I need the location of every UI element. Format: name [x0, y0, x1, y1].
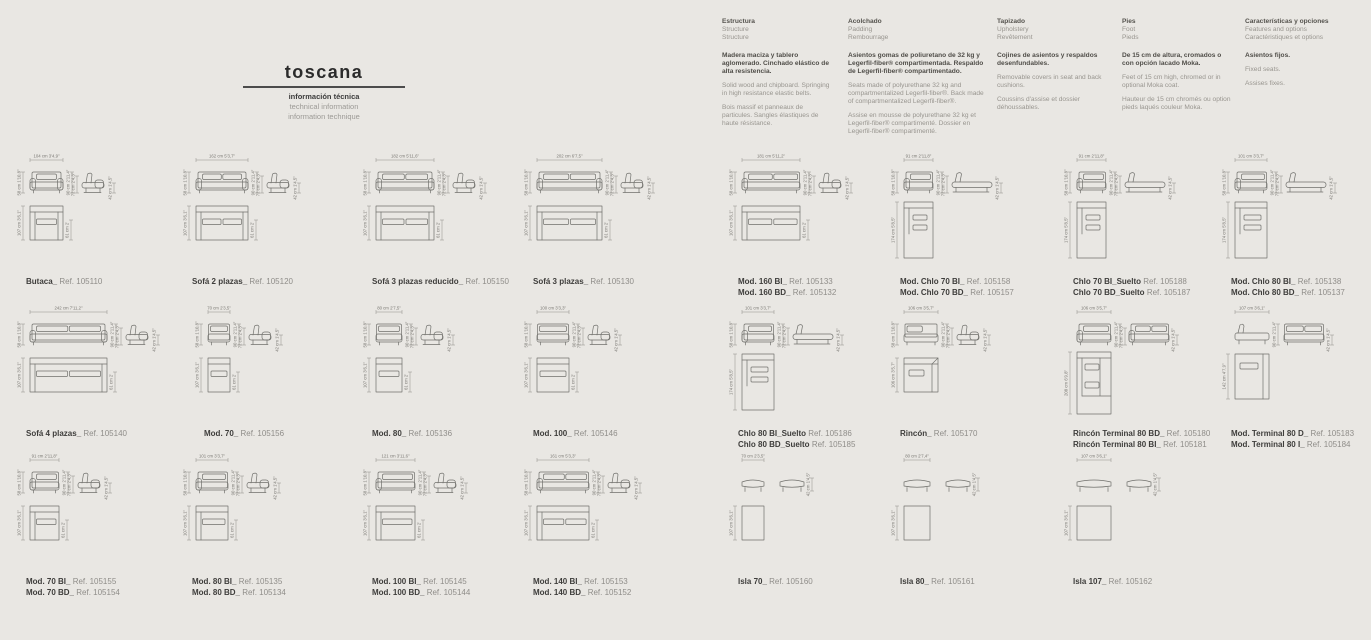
side-view-chaise [793, 325, 833, 344]
technical-drawing: 202 cm 6'7,5"58 cm 1'10,8"90 cm 2'11,4"7… [517, 150, 689, 275]
product-label: Sofá 2 plazas_ Ref. 105120 [192, 277, 348, 288]
plan-view [1077, 202, 1106, 258]
dimension-height: 106 cm 3'5,7" [891, 358, 900, 392]
product-labels: Sofá 3 plazas_ Ref. 105130 [533, 277, 689, 288]
dimension-label: 107 cm 3'6,1" [17, 510, 22, 536]
spec-heading-es: Estructura [722, 18, 834, 26]
technical-drawing: 80 cm 2'7,4"42 cm 1'4,5"107 cm 3'6,1" [884, 450, 1056, 575]
technical-drawing: 101 cm 3'3,7"58 cm 1'10,8"90 cm 2'11,4"7… [176, 450, 348, 575]
dimension-label: 72 cm 2'4,3" [238, 324, 243, 348]
side-view [267, 173, 289, 192]
spec-paragraph: Assise en mousse de polyurethane 32 kg e… [848, 112, 986, 136]
spec-heading: Características y opcionesFeatures and o… [1245, 18, 1365, 42]
product-cell-isla-107: 107 cm 3'6,1"42 cm 1'4,5"107 cm 3'6,1"Is… [1057, 450, 1229, 588]
front-view [376, 324, 402, 345]
dimension-width: 162 cm 5'3,7" [196, 154, 248, 163]
spec-heading-es: Características y opciones [1245, 18, 1365, 26]
product-ref: Ref. 105154 [76, 588, 120, 597]
dimension-label: 174 cm 5'8,5" [729, 369, 734, 395]
dimension-label: 91 cm 2'11,8" [32, 454, 58, 459]
front-view-ottoman [946, 480, 970, 492]
spec-lead: Asientos gomas de poliuretano de 32 kg y… [848, 52, 986, 76]
spec-paragraph: Feet of 15 cm high, chromed or in option… [1122, 74, 1234, 90]
dimension-height: 58 cm 1'10,8" [183, 469, 192, 495]
dimension-label: 42 cm 1'4,5" [972, 472, 977, 496]
product-label: Chlo 70 BD_Suelto Ref. 105187 [1073, 288, 1229, 299]
dimension-label: 72 cm 2'4,3" [610, 172, 615, 196]
dimension-label: 72 cm 2'4,3" [1119, 324, 1124, 348]
side-view [621, 173, 643, 192]
product-ref: Ref. 105135 [239, 577, 283, 586]
plan-view [196, 206, 248, 240]
side-view-chaise [1286, 173, 1326, 192]
product-label: Mod. 140 BI_ Ref. 105153 [533, 577, 689, 588]
dimension-label: 107 cm 3'6,1" [183, 510, 188, 536]
dimension-height: 61 cm 2' [591, 520, 600, 540]
product-name: Rincón_ [900, 429, 932, 438]
product-cell-mod-70: 70 cm 2'3,5"58 cm 1'10,8"90 cm 2'11,4"72… [188, 302, 360, 440]
dimension-label: 100 cm 3'3,3" [540, 306, 566, 311]
dimension-label: 72 cm 2'4,3" [442, 172, 447, 196]
dimension-label: 58 cm 1'10,8" [17, 469, 22, 495]
spec-column-4: PiesFootPiedsDe 15 cm de altura, cromado… [1122, 18, 1234, 118]
dimension-label: 106 cm 3'5,7" [908, 306, 934, 311]
dimension-width: 202 cm 6'7,5" [537, 154, 602, 163]
product-labels: Butaca_ Ref. 105110 [26, 277, 182, 288]
dimension-height: 42 cm 1'4,5" [275, 328, 284, 352]
spec-paragraph: Coussins d'assise et dossier déhoussable… [997, 96, 1115, 112]
product-ref: Ref. 105137 [1301, 288, 1345, 297]
dimension-label: 72 cm 2'4,3" [115, 324, 120, 348]
dimension-height: 58 cm 1'10,8" [183, 169, 192, 195]
dimension-width: 107 cm 3'6,1" [1235, 306, 1269, 315]
dimension-height: 42 cm 1'4,5" [983, 328, 992, 352]
dimension-label: 162 cm 5'3,7" [209, 154, 235, 159]
dimension-height: 42 cm 1'4,5" [806, 472, 815, 496]
dimension-width: 91 cm 2'11,8" [30, 454, 59, 463]
technical-drawing: 161 cm 5'3,3"58 cm 1'10,8"90 cm 2'11,4"7… [517, 450, 689, 575]
product-ref: Ref. 105130 [590, 277, 634, 286]
product-ref: Ref. 105133 [789, 277, 833, 286]
product-labels: Mod. 140 BI_ Ref. 105153Mod. 140 BD_ Ref… [533, 577, 689, 598]
dimension-width: 70 cm 2'3,5" [207, 306, 231, 315]
product-cell-mod-140-bi-bd: 161 cm 5'3,3"58 cm 1'10,8"90 cm 2'11,4"7… [517, 450, 689, 598]
dimension-height: 42 cm 1'4,5" [479, 176, 488, 200]
dimension-height: 61 cm 2' [604, 220, 613, 240]
product-cell-mod-terminal-80: 107 cm 3'6,1"90 cm 2'11,4"42 cm 1'4,5"14… [1215, 302, 1371, 450]
product-labels: Mod. 100 BI_ Ref. 105145Mod. 100 BD_ Ref… [372, 577, 528, 598]
technical-drawing: 106 cm 3'5,7"58 cm 1'10,8"90 cm 2'11,4"7… [884, 302, 1056, 427]
side-view [819, 173, 841, 192]
spec-heading-en: Foot [1122, 26, 1234, 34]
front-view [742, 172, 800, 193]
product-ref: Ref. 105187 [1147, 288, 1191, 297]
plan-view [904, 506, 930, 540]
dimension-label: 72 cm 2'4,3" [946, 324, 951, 348]
product-name: Mod. 160 BD_ [738, 288, 790, 297]
product-ref: Ref. 105158 [967, 277, 1011, 286]
dimension-height: 174 cm 5'8,5" [1222, 202, 1231, 258]
dimension-height: 42 cm 1'4,5" [634, 476, 643, 500]
product-ref: Ref. 105150 [465, 277, 509, 286]
product-labels: Mod. 80_ Ref. 105136 [372, 429, 528, 440]
plan-view [537, 206, 602, 240]
dimension-label: 42 cm 1'4,5" [647, 176, 652, 200]
dimension-height: 72 cm 2'4,3" [410, 324, 419, 348]
dimension-label: 72 cm 2'4,3" [236, 472, 241, 496]
spec-lead: Cojines de asientos y respaldos desenfun… [997, 52, 1115, 68]
front-view [196, 172, 248, 193]
product-name: Mod. 70 BI_ [26, 577, 70, 586]
dimension-label: 42 cm 1'4,5" [995, 176, 1000, 200]
dimension-height: 42 cm 1'4,5" [995, 176, 1004, 200]
plan-view [537, 506, 589, 540]
dimension-width: 101 cm 3'3,7" [1235, 154, 1267, 163]
dimension-label: 72 cm 2'4,3" [423, 472, 428, 496]
product-ref: Ref. 105188 [1143, 277, 1187, 286]
product-cell-isla-70: 70 cm 2'3,5"42 cm 1'4,5"107 cm 3'6,1"Isl… [722, 450, 894, 588]
spec-heading-en: Features and options [1245, 26, 1365, 34]
product-label: Isla 107_ Ref. 105162 [1073, 577, 1229, 588]
dimension-label: 42 cm 1'4,5" [273, 476, 278, 500]
product-label: Mod. 80_ Ref. 105136 [372, 429, 528, 440]
dimension-label: 58 cm 1'10,8" [17, 321, 22, 347]
dimension-height: 58 cm 1'10,8" [524, 169, 533, 195]
product-cell-isla-80: 80 cm 2'7,4"42 cm 1'4,5"107 cm 3'6,1"Isl… [884, 450, 1056, 588]
dimension-label: 72 cm 2'4,3" [782, 324, 787, 348]
dimension-height: 42 cm 1'4,5" [1329, 176, 1338, 200]
dimension-label: 242 cm 7'11,2" [54, 306, 83, 311]
dimension-height: 107 cm 3'6,1" [17, 358, 26, 392]
side-view [126, 325, 148, 344]
dimension-label: 42 cm 1'4,5" [836, 328, 841, 352]
dimension-height: 107 cm 3'6,1" [195, 358, 204, 392]
dimension-label: 107 cm 3'6,1" [1239, 306, 1265, 311]
dimension-height: 72 cm 2'4,3" [1114, 172, 1123, 196]
product-name: Sofá 3 plazas_ [533, 277, 588, 286]
dimension-label: 61 cm 2' [591, 522, 596, 538]
dimension-label: 107 cm 3'6,1" [1081, 454, 1107, 459]
product-labels: Mod. 80 BI_ Ref. 105135Mod. 80 BD_ Ref. … [192, 577, 348, 598]
product-ref: Ref. 105185 [812, 440, 856, 449]
dimension-label: 101 cm 3'3,7" [745, 306, 771, 311]
dimension-label: 42 cm 1'4,5" [614, 328, 619, 352]
product-name: Mod. Chlo 80 BD_ [1231, 288, 1299, 297]
dimension-height: 58 cm 1'10,8" [524, 321, 533, 347]
front-view [376, 172, 434, 193]
product-labels: Sofá 4 plazas_ Ref. 105140 [26, 429, 182, 440]
technical-drawing: 91 cm 2'11,8"58 cm 1'10,8"90 cm 2'11,4"7… [10, 450, 182, 575]
dimension-label: 42 cm 1'4,5" [108, 176, 113, 200]
front-view [30, 324, 107, 345]
dimension-label: 58 cm 1'10,8" [891, 169, 896, 195]
dimension-height: 42 cm 1'4,5" [447, 328, 456, 352]
dimension-height: 61 cm 2' [404, 372, 413, 392]
dimension-label: 174 cm 5'8,5" [891, 217, 896, 243]
front-view [1077, 324, 1111, 345]
spec-heading-fr: Rembourrage [848, 34, 986, 42]
product-labels: Rincón Terminal 80 BD_ Ref. 105180Rincón… [1073, 429, 1229, 450]
technical-drawing: 91 cm 2'11,8"58 cm 1'10,8"90 cm 2'11,4"7… [884, 150, 1056, 275]
dimension-height: 142 cm 4'7,9" [1222, 354, 1231, 399]
dimension-label: 121 cm 3'11,6" [381, 454, 410, 459]
dimension-label: 58 cm 1'10,8" [729, 169, 734, 195]
product-cell-mod-70-bi-bd: 91 cm 2'11,8"58 cm 1'10,8"90 cm 2'11,4"7… [10, 450, 182, 598]
product-name: Mod. Terminal 80 I_ [1231, 440, 1305, 449]
dimension-width: 161 cm 5'3,3" [537, 454, 589, 463]
plan-view [376, 506, 415, 540]
product-name: Sofá 2 plazas_ [192, 277, 247, 286]
dimension-height: 58 cm 1'10,8" [17, 169, 26, 195]
dimension-height: 107 cm 3'6,1" [1064, 506, 1073, 540]
dimension-label: 107 cm 3'6,1" [363, 362, 368, 388]
dimension-label: 61 cm 2' [417, 522, 422, 538]
dimension-label: 58 cm 1'10,8" [363, 321, 368, 347]
dimension-height: 107 cm 3'6,1" [17, 506, 26, 540]
dimension-height: 174 cm 5'8,5" [891, 202, 900, 258]
dimension-height: 72 cm 2'4,3" [808, 172, 817, 196]
product-labels: Isla 70_ Ref. 105160 [738, 577, 894, 588]
dimension-label: 58 cm 1'10,8" [891, 321, 896, 347]
technical-drawing: 182 cm 5'11,6"58 cm 1'10,8"90 cm 2'11,4"… [356, 150, 528, 275]
side-view [82, 173, 104, 192]
side-view [78, 473, 100, 492]
product-ref: Ref. 105155 [73, 577, 117, 586]
dimension-height: 72 cm 2'4,3" [71, 172, 80, 196]
dimension-label: 58 cm 1'10,8" [524, 169, 529, 195]
dimension-height: 107 cm 3'6,1" [729, 206, 738, 240]
dimension-height: 42 cm 1'4,5" [460, 476, 469, 500]
technical-drawing: 121 cm 3'11,6"58 cm 1'10,8"90 cm 2'11,4"… [356, 450, 528, 575]
product-ref: Ref. 105161 [931, 577, 975, 586]
product-name: Sofá 3 plazas reducido_ [372, 277, 463, 286]
product-name: Mod. 100_ [533, 429, 572, 438]
dimension-height: 107 cm 3'6,1" [363, 206, 372, 240]
dimension-label: 91 cm 2'11,8" [906, 154, 932, 159]
front-view-terminal [1235, 324, 1269, 344]
technical-drawing: 101 cm 3'3,7"58 cm 1'10,8"90 cm 2'11,4"7… [722, 302, 894, 427]
subtitle-en: technical information [243, 102, 405, 112]
plan-view [1077, 352, 1111, 414]
plan-view [1235, 202, 1267, 258]
dimension-width: 80 cm 2'7,4" [904, 454, 930, 463]
dimension-label: 61 cm 2' [109, 374, 114, 390]
dimension-height: 42 cm 1'4,5" [836, 328, 845, 352]
technical-drawing: 91 cm 2'11,8"58 cm 1'10,8"90 cm 2'11,4"7… [1057, 150, 1229, 275]
spec-heading: AcolchadoPaddingRembourrage [848, 18, 986, 42]
dimension-height: 61 cm 2' [230, 520, 239, 540]
dimension-label: 58 cm 1'10,8" [183, 469, 188, 495]
product-cell-sofa-3-plazas-reducido: 182 cm 5'11,6"58 cm 1'10,8"90 cm 2'11,4"… [356, 150, 528, 288]
plan-view [376, 206, 434, 240]
dimension-height: 58 cm 1'10,8" [891, 321, 900, 347]
product-label: Mod. 100 BI_ Ref. 105145 [372, 577, 528, 588]
dimension-height: 208 cm 6'9,8" [1064, 352, 1073, 414]
front-view [1077, 172, 1106, 193]
product-name: Chlo 70 BD_Suelto [1073, 288, 1145, 297]
dimension-height: 61 cm 2' [417, 520, 426, 540]
product-ref: Ref. 105170 [934, 429, 978, 438]
technical-drawing: 101 cm 3'3,7"58 cm 1'10,8"90 cm 2'11,4"7… [1215, 150, 1371, 275]
dimension-height: 58 cm 1'10,8" [524, 469, 533, 495]
dimension-label: 61 cm 2' [436, 222, 441, 238]
dimension-width: 91 cm 2'11,8" [1077, 154, 1106, 163]
dimension-height: 42 cm 1'4,5" [972, 472, 981, 496]
product-cell-mod-chlo-70: 91 cm 2'11,8"58 cm 1'10,8"90 cm 2'11,4"7… [884, 150, 1056, 298]
product-name: Mod. 140 BD_ [533, 588, 585, 597]
product-cell-sofa-4-plazas: 242 cm 7'11,2"58 cm 1'10,8"90 cm 2'11,4"… [10, 302, 182, 440]
front-view-ottoman [1077, 480, 1111, 492]
technical-drawing: 181 cm 5'11,2"58 cm 1'10,8"90 cm 2'11,4"… [722, 150, 894, 275]
dimension-label: 42 cm 1'4,5" [983, 328, 988, 352]
product-label: Sofá 4 plazas_ Ref. 105140 [26, 429, 182, 440]
dimension-label: 101 cm 3'3,7" [1238, 154, 1264, 159]
product-ref: Ref. 105120 [249, 277, 293, 286]
dimension-label: 107 cm 3'6,1" [195, 362, 200, 388]
dimension-height: 107 cm 3'6,1" [524, 206, 533, 240]
product-name: Mod. 80 BD_ [192, 588, 240, 597]
product-name: Mod. 100 BI_ [372, 577, 421, 586]
product-cell-sofa-3-plazas: 202 cm 6'7,5"58 cm 1'10,8"90 cm 2'11,4"7… [517, 150, 689, 288]
front-view [196, 472, 228, 493]
plan-view [742, 506, 764, 540]
spec-paragraph: Fixed seats. [1245, 66, 1365, 74]
product-ref: Ref. 105181 [1163, 440, 1207, 449]
side-view [249, 325, 271, 344]
side-view [247, 473, 269, 492]
front-view-ottoman [742, 480, 764, 492]
dimension-label: 58 cm 1'10,8" [363, 469, 368, 495]
product-cell-chlo-70-suelto: 91 cm 2'11,8"58 cm 1'10,8"90 cm 2'11,4"7… [1057, 150, 1229, 298]
dimension-label: 107 cm 3'6,1" [183, 210, 188, 236]
dimension-label: 107 cm 3'6,1" [524, 510, 529, 536]
side-view [421, 325, 443, 344]
product-label: Mod. Chlo 80 BI_ Ref. 105138 [1231, 277, 1371, 288]
spec-heading-fr: Structure [722, 34, 834, 42]
spec-heading: EstructuraStructureStructure [722, 18, 834, 42]
product-label: Mod. 160 BD_ Ref. 105132 [738, 288, 894, 299]
dimension-width: 104 cm 3'4,9" [30, 154, 63, 163]
product-ref: Ref. 105180 [1167, 429, 1211, 438]
spec-column-3: TapizadoUpholsteryRevêtementCojines de a… [997, 18, 1115, 118]
dimension-height: 58 cm 1'10,8" [17, 321, 26, 347]
dimension-label: 208 cm 6'9,8" [1064, 370, 1069, 396]
dimension-label: 58 cm 1'10,8" [195, 321, 200, 347]
product-ref: Ref. 105184 [1307, 440, 1351, 449]
dimension-label: 107 cm 3'6,1" [17, 362, 22, 388]
product-labels: Chlo 70 BI_Suelto Ref. 105188Chlo 70 BD_… [1073, 277, 1229, 298]
front-view [1235, 172, 1267, 193]
product-label: Mod. Chlo 70 BD_ Ref. 105157 [900, 288, 1056, 299]
product-labels: Mod. Chlo 70 BI_ Ref. 105158Mod. Chlo 70… [900, 277, 1056, 298]
dimension-label: 107 cm 3'6,1" [363, 510, 368, 536]
dimension-label: 58 cm 1'10,8" [1222, 169, 1227, 195]
product-label: Rincón_ Ref. 105170 [900, 429, 1056, 440]
front-view [376, 472, 415, 493]
product-cell-rincon: 106 cm 3'5,7"58 cm 1'10,8"90 cm 2'11,4"7… [884, 302, 1056, 440]
dimension-label: 42 cm 1'4,5" [293, 176, 298, 200]
front-view [742, 324, 774, 345]
dimension-height: 107 cm 3'6,1" [524, 506, 533, 540]
product-label: Sofá 3 plazas reducido_ Ref. 105150 [372, 277, 528, 288]
dimension-label: 61 cm 2' [65, 222, 70, 238]
front-view [30, 472, 59, 493]
spec-paragraph: Removable covers in seat and back cushio… [997, 74, 1115, 90]
dimension-height: 42 cm 1'4,5" [108, 176, 117, 200]
front-view-ottoman [1127, 480, 1151, 492]
dimension-height: 42 cm 1'4,5" [1326, 328, 1335, 352]
product-ref: Ref. 105156 [240, 429, 284, 438]
dimension-height: 107 cm 3'6,1" [183, 506, 192, 540]
front-view-ottoman [780, 480, 804, 492]
dimension-label: 107 cm 3'6,1" [363, 210, 368, 236]
dimension-label: 70 cm 2'3,5" [207, 306, 231, 311]
product-label: Mod. 70 BD_ Ref. 105154 [26, 588, 182, 599]
dimension-height: 58 cm 1'10,8" [1222, 169, 1231, 195]
dimension-label: 61 cm 2' [61, 522, 66, 538]
dimension-height: 107 cm 3'6,1" [524, 358, 533, 392]
dimension-height: 42 cm 1'4,5" [104, 476, 113, 500]
dimension-label: 58 cm 1'10,8" [17, 169, 22, 195]
spec-paragraph: Seats made of polyurethane 32 kg and com… [848, 82, 986, 106]
spec-lead: Madera maciza y tablero aglomerado. Cinc… [722, 52, 834, 76]
dimension-label: 42 cm 1'4,5" [806, 472, 811, 496]
collection-title: toscana [243, 62, 405, 83]
dimension-height: 72 cm 2'4,3" [67, 472, 76, 496]
product-label: Isla 70_ Ref. 105160 [738, 577, 894, 588]
product-name: Chlo 80 BD_Suelto [738, 440, 810, 449]
dimension-label: 107 cm 3'6,1" [524, 362, 529, 388]
dimension-label: 72 cm 2'4,3" [71, 172, 76, 196]
dimension-label: 61 cm 2' [232, 374, 237, 390]
dimension-height: 72 cm 2'4,3" [442, 172, 451, 196]
dimension-label: 42 cm 1'4,5" [1168, 176, 1173, 200]
plan-view [1235, 354, 1269, 399]
spec-paragraph: Solid wood and chipboard. Springing in h… [722, 82, 834, 98]
spec-heading-fr: Pieds [1122, 34, 1234, 42]
product-ref: Ref. 105152 [588, 588, 632, 597]
dimension-label: 72 cm 2'4,3" [256, 172, 261, 196]
product-label: Mod. 70_ Ref. 105156 [204, 429, 360, 440]
product-labels: Sofá 2 plazas_ Ref. 105120 [192, 277, 348, 288]
dimension-height: 42 cm 1'4,5" [293, 176, 302, 200]
dimension-height: 72 cm 2'4,3" [256, 172, 265, 196]
product-label: Chlo 70 BI_Suelto Ref. 105188 [1073, 277, 1229, 288]
product-name: Mod. 70 BD_ [26, 588, 74, 597]
dimension-height: 107 cm 3'6,1" [729, 506, 738, 540]
product-name: Mod. Terminal 80 D_ [1231, 429, 1308, 438]
spec-paragraph: Assises fixes. [1245, 80, 1365, 88]
dimension-height: 72 cm 2'4,3" [1119, 324, 1128, 348]
product-name: Mod. Chlo 80 BI_ [1231, 277, 1295, 286]
product-name: Mod. Chlo 70 BI_ [900, 277, 964, 286]
spec-heading-fr: Revêtement [997, 34, 1115, 42]
technical-drawing: 106 cm 3'5,7"90 cm 2'11,4"72 cm 2'4,3"42… [1057, 302, 1229, 427]
product-label: Mod. Chlo 70 BI_ Ref. 105158 [900, 277, 1056, 288]
dimension-label: 72 cm 2'4,3" [941, 172, 946, 196]
product-labels: Sofá 3 plazas reducido_ Ref. 105150 [372, 277, 528, 288]
dimension-width: 181 cm 5'11,2" [742, 154, 800, 163]
plan-view [904, 202, 933, 258]
dimension-label: 42 cm 1'4,5" [634, 476, 639, 500]
product-cell-mod-100-bi-bd: 121 cm 3'11,6"58 cm 1'10,8"90 cm 2'11,4"… [356, 450, 528, 598]
product-name: Chlo 70 BI_Suelto [1073, 277, 1141, 286]
front-view-ottoman [904, 480, 930, 492]
dimension-width: 107 cm 3'6,1" [1077, 454, 1111, 463]
dimension-label: 42 cm 1'4,5" [1329, 176, 1334, 200]
product-ref: Ref. 105144 [427, 588, 471, 597]
dimension-label: 58 cm 1'10,8" [729, 321, 734, 347]
